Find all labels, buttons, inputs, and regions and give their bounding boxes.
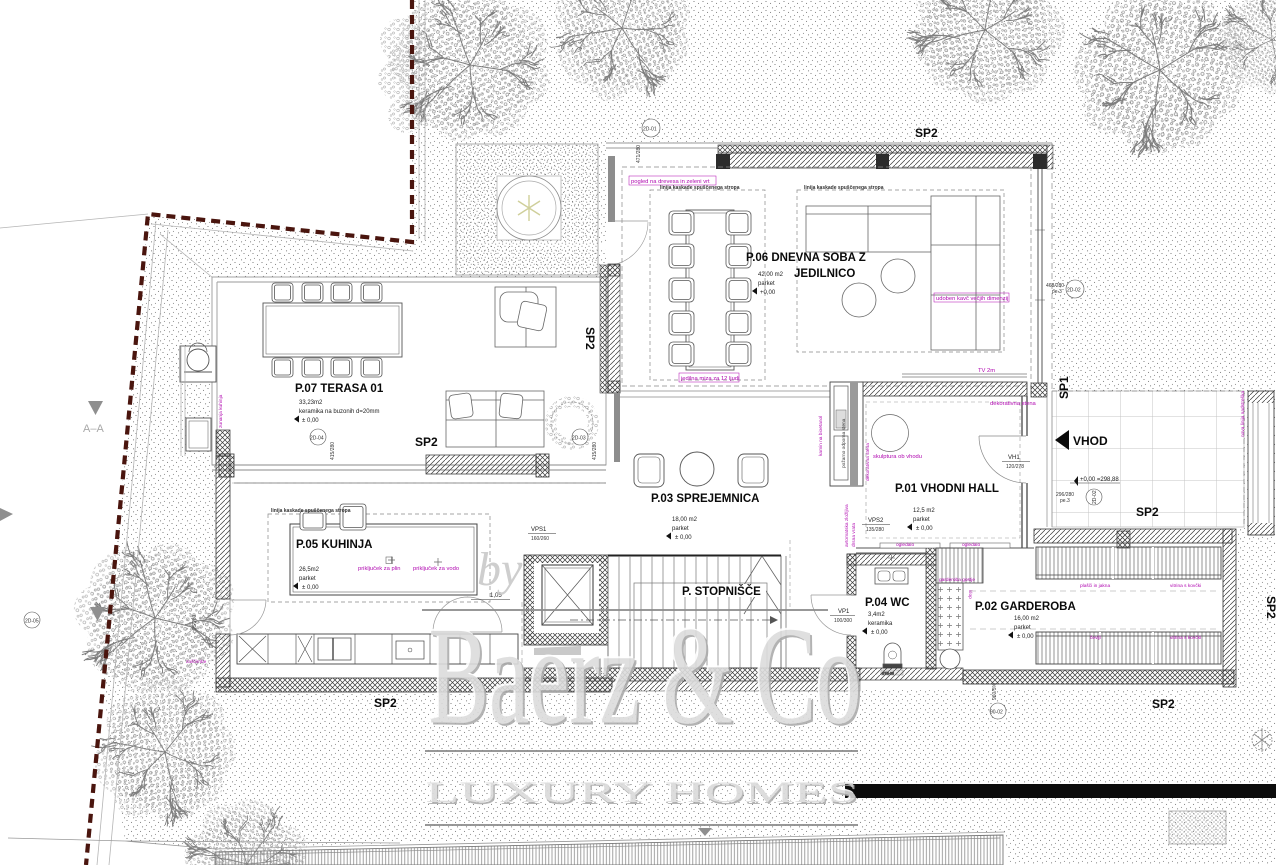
svg-text:VHOD: VHOD [1073,434,1108,448]
svg-text:160/260: 160/260 [531,536,549,542]
svg-text:linija kaskade spuščenega stro: linija kaskade spuščenega stropa [660,185,740,191]
svg-text:95/280: 95/280 [192,614,198,630]
svg-text:čevlji: čevlji [1090,635,1101,641]
svg-text:SP2: SP2 [1152,697,1175,711]
svg-text:VPS2: VPS2 [868,518,884,524]
svg-text:keramika na buzonih d=20mm: keramika na buzonih d=20mm [299,409,380,415]
svg-text:± 0,00: ± 0,00 [302,418,319,424]
svg-text:960/5%: 960/5% [992,682,998,700]
svg-text:A–A: A–A [83,423,104,435]
svg-text:2D-02: 2D-02 [1092,490,1098,504]
svg-text:2D-03: 2D-03 [572,436,586,442]
svg-text:pe.3: pe.3 [1052,289,1062,295]
svg-text:avtomatska zložljiva: avtomatska zložljiva [844,504,850,547]
svg-text:vitrina s kovčki: vitrina s kovčki [1170,635,1201,641]
svg-text:P.04 WC: P.04 WC [865,597,910,609]
svg-text:16,00 m2: 16,00 m2 [1014,616,1040,622]
svg-text:parket: parket [299,576,316,582]
svg-text:± 0,00: ± 0,00 [302,585,319,591]
svg-text:SP2: SP2 [583,327,597,350]
svg-text:415/280: 415/280 [592,442,598,460]
svg-text:135/280: 135/280 [866,527,884,533]
svg-text:SP2: SP2 [915,126,938,140]
svg-text:vitrina s kovčki: vitrina s kovčki [1170,583,1201,589]
svg-text:2D-05: 2D-05 [25,619,39,625]
svg-text:P.05 KUHINJA: P.05 KUHINJA [296,539,373,551]
svg-text:12,5 m2: 12,5 m2 [913,508,935,514]
svg-text:VPS1: VPS1 [531,527,547,533]
svg-text:26,5m2: 26,5m2 [299,567,320,573]
svg-text:udoben kavč večjih dimenzij: udoben kavč večjih dimenzij [936,296,1008,302]
svg-text:± 0,00: ± 0,00 [916,526,933,532]
svg-text:+0,00 =298,88: +0,00 =298,88 [1080,477,1119,483]
svg-text:keramika: keramika [868,621,893,627]
svg-text:± 0,00: ± 0,00 [871,630,888,636]
svg-text:P.07 TERASA 01: P.07 TERASA 01 [295,383,384,395]
svg-text:SP2: SP2 [415,435,438,449]
svg-text:parket: parket [1014,625,1031,631]
svg-text:18,00 m2: 18,00 m2 [672,517,698,523]
svg-text:VH1: VH1 [1008,455,1020,461]
svg-text:drsna vrata: drsna vrata [851,523,857,547]
svg-text:nova linija nadstreška: nova linija nadstreška [1240,391,1246,437]
svg-text:P.06 DNEVNA SOBA Z: P.06 DNEVNA SOBA Z [746,252,866,264]
svg-text:2D-04: 2D-04 [310,436,324,442]
svg-text:linija kaskade spuščenega stro: linija kaskade spuščenega stropa [804,185,884,191]
svg-text:zaščimbe: zaščimbe [186,659,207,665]
svg-text:garderoba gostje: garderoba gostje [939,577,975,583]
svg-text:2D-01: 2D-01 [643,127,657,133]
svg-text:± 0,00: ± 0,00 [1017,634,1034,640]
svg-text:kamin na bioetanol: kamin na bioetanol [818,416,824,456]
svg-text:plašči in jakna: plašči in jakna [1080,583,1110,589]
svg-text:ogledalo: ogledalo [962,542,980,548]
svg-text:+0,00: +0,00 [760,290,776,296]
svg-text:SP2: SP2 [374,696,397,710]
svg-text:42,00 m2: 42,00 m2 [758,272,784,278]
svg-text:TV 2m: TV 2m [978,368,995,374]
svg-text:P.03 SPREJEMNICA: P.03 SPREJEMNICA [651,493,759,505]
svg-text:P.02 GARDEROBA: P.02 GARDEROBA [975,601,1076,613]
svg-text:klop: klop [967,590,973,599]
svg-text:priključek za plin: priključek za plin [358,566,401,572]
svg-text:zunanja kuhinja: zunanja kuhinja [218,394,224,428]
svg-text:90-02: 90-02 [990,710,1003,716]
svg-text:parket: parket [758,281,775,287]
svg-text:parket: parket [672,526,689,532]
svg-text:2D-02: 2D-02 [1067,288,1081,294]
svg-text:dekorativna stena: dekorativna stena [865,443,871,481]
svg-text:pe.3: pe.3 [1060,498,1070,504]
svg-text:SP2: SP2 [1136,505,1159,519]
svg-text:3,4m2: 3,4m2 [868,612,885,618]
svg-text:skulptura ob vhodu: skulptura ob vhodu [873,454,922,460]
svg-text:jedilna miza za 12 ljudi: jedilna miza za 12 ljudi [680,376,739,382]
svg-text:priključek za vodo: priključek za vodo [413,566,459,572]
svg-text:471/280: 471/280 [636,145,642,163]
svg-text:linija kaskade spuščenega stro: linija kaskade spuščenega stropa [271,508,351,514]
svg-text:by: by [477,543,523,596]
svg-text:Baerz & Co: Baerz & Co [429,599,862,754]
svg-text:dekorativna stena: dekorativna stena [990,401,1037,407]
svg-text:ogledalo: ogledalo [896,542,914,548]
svg-text:415/280: 415/280 [330,442,336,460]
svg-text:33,23m2: 33,23m2 [299,400,323,406]
svg-text:požarno odporna stena: požarno odporna stena [841,418,847,468]
svg-text:P.01 VHODNI HALL: P.01 VHODNI HALL [895,483,999,495]
svg-text:parket: parket [913,517,930,523]
svg-text:JEDILNICO: JEDILNICO [794,268,855,280]
svg-text:120/278: 120/278 [1006,464,1024,470]
svg-text:± 0,00: ± 0,00 [675,535,692,541]
svg-text:LUXURY HOMES: LUXURY HOMES [426,776,859,809]
svg-text:SP2: SP2 [1264,596,1276,619]
